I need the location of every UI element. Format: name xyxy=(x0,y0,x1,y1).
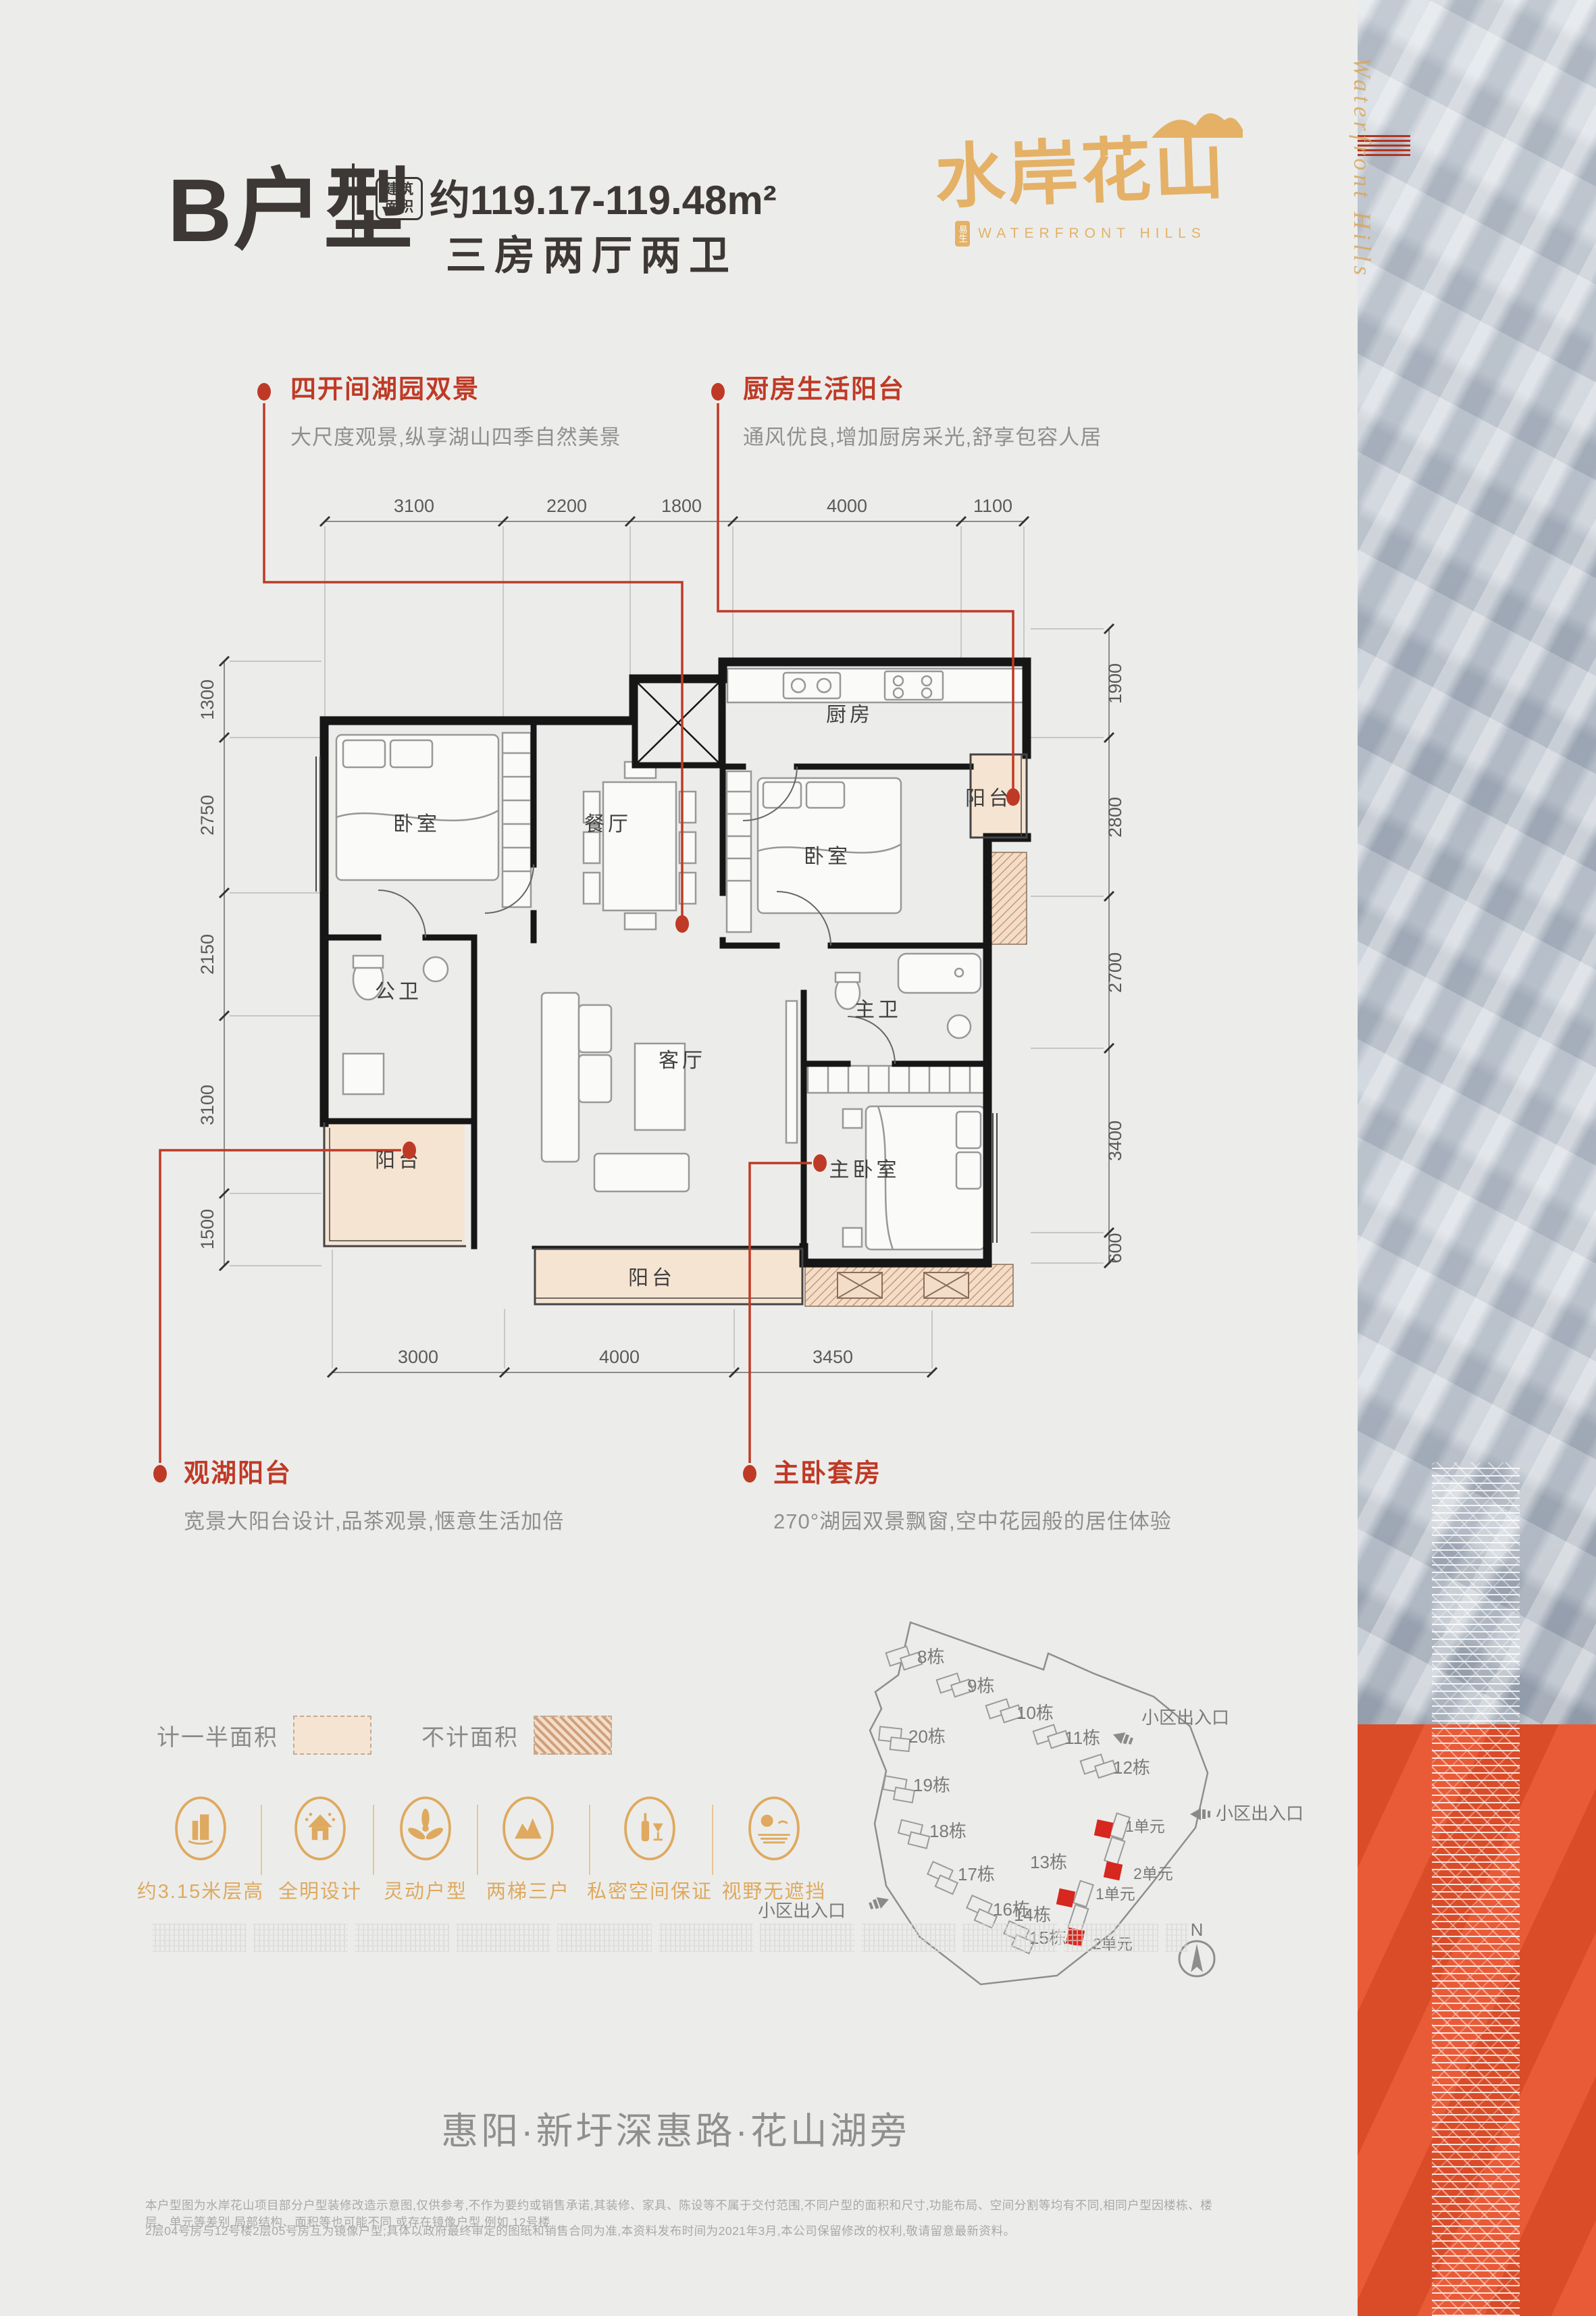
brand-logo: 水岸花山 易生 WATERFRONT HILLS xyxy=(922,115,1239,247)
mountain-icon xyxy=(1145,103,1246,143)
view-icon xyxy=(745,1795,803,1865)
dim-bottom-2: 4000 xyxy=(599,1347,640,1367)
dim-top-1: 3100 xyxy=(394,496,434,516)
callout-title: 主卧套房 xyxy=(773,1452,1172,1489)
entrance-label-top: 小区出入口 xyxy=(1141,1707,1229,1728)
room-bath-public: 公卫 xyxy=(375,981,422,1003)
wine-icon xyxy=(621,1795,679,1865)
feature-open-view: 视野无遮挡 xyxy=(706,1795,842,1904)
callout-title: 观湖阳台 xyxy=(184,1452,564,1489)
dim-right-1: 1900 xyxy=(1105,663,1125,704)
brand-seal: 易生 xyxy=(955,221,970,247)
dim-top-2: 2200 xyxy=(546,496,587,516)
fan-icon xyxy=(396,1795,455,1865)
callout-title: 厨房生活阳台 xyxy=(743,368,1102,405)
room-balcony-bottom: 阳台 xyxy=(628,1267,675,1289)
site-bld-14: 14栋 xyxy=(1014,1905,1051,1925)
project-address: 惠阳·新圩深惠路·花山湖旁 xyxy=(135,2101,1216,2155)
callout-desc: 通风优良,增加厨房采光,舒享包容人居 xyxy=(743,420,1102,451)
room-living: 客厅 xyxy=(659,1050,706,1072)
callout-dots xyxy=(153,383,1020,1483)
legend-none-label: 不计面积 xyxy=(421,1719,519,1752)
brand-logo-en: WATERFRONT HILLS xyxy=(978,226,1206,242)
unit-13-1: 1单元 xyxy=(1125,1818,1165,1835)
dim-top-4: 4000 xyxy=(827,496,867,516)
dim-right-4: 3400 xyxy=(1105,1121,1125,1161)
room-kitchen: 厨房 xyxy=(826,704,873,726)
room-bedroom-left: 卧室 xyxy=(393,813,440,835)
room-bedroom-right: 卧室 xyxy=(804,846,851,868)
legend-half-swatch xyxy=(293,1716,371,1755)
dim-right-2: 2800 xyxy=(1105,797,1125,838)
dim-left-3: 2150 xyxy=(197,934,217,975)
house-icon xyxy=(291,1795,349,1865)
site-bld-13: 13栋 xyxy=(1030,1852,1067,1872)
dim-right-3: 2700 xyxy=(1105,952,1125,993)
site-bld-10: 10栋 xyxy=(1016,1703,1054,1723)
site-bld-8: 8栋 xyxy=(917,1647,944,1667)
dim-right-5: 600 xyxy=(1105,1233,1125,1263)
disclaimer-line2: 2层04号房与12号楼2层05号房互为镜像户型;具体以政府最终审定的图纸和销售合… xyxy=(145,2222,1236,2239)
compass-n: N xyxy=(1191,1920,1204,1940)
callout-master-suite: 主卧套房 270°湖园双景飘窗,空中花园般的居住体验 xyxy=(773,1452,1172,1535)
strip-line-pattern xyxy=(1432,1462,1520,2316)
dim-top-5: 1100 xyxy=(973,496,1012,516)
mountain-icon xyxy=(499,1795,557,1865)
unit-13-2: 2单元 xyxy=(1133,1865,1173,1882)
title-divider xyxy=(352,163,355,243)
dim-bottom-1: 3000 xyxy=(398,1347,438,1367)
feature-elevators: 两梯三户 xyxy=(461,1795,596,1904)
feature-floor-height: 约3.15米层高 xyxy=(133,1795,268,1904)
area-badge-line2: 面积 xyxy=(385,199,413,216)
callout-desc: 宽景大阳台设计,品茶观景,惬意生活加倍 xyxy=(184,1504,564,1535)
feature-privacy: 私密空间保证 xyxy=(582,1795,717,1904)
poster-page: 3100 2200 1800 4000 1100 1300 2750 2150 … xyxy=(0,0,1596,2316)
area-legend: 计一半面积 不计面积 xyxy=(157,1716,612,1755)
callout-kitchen-balcony: 厨房生活阳台 通风优良,增加厨房采光,舒享包容人居 xyxy=(743,368,1102,451)
site-bld-19: 19栋 xyxy=(913,1775,950,1795)
building-icon xyxy=(172,1795,230,1865)
legend-none-swatch xyxy=(534,1716,612,1755)
layout-value: 三房两厅两卫 xyxy=(446,223,738,282)
site-bld-9: 9栋 xyxy=(967,1676,994,1696)
room-master-bedroom: 主卧室 xyxy=(829,1159,900,1181)
room-dining: 餐厅 xyxy=(584,813,632,835)
dim-top-3: 1800 xyxy=(661,496,702,516)
legend-half-label: 计一半面积 xyxy=(157,1719,278,1752)
unit-14-1: 1单元 xyxy=(1096,1885,1135,1903)
decorative-glyph-band xyxy=(145,1924,1189,1952)
dim-left-1: 1300 xyxy=(197,679,217,720)
gold-script-text: Waterfront Hills xyxy=(1348,57,1376,422)
callout-desc: 大尺度观景,纵享湖山四季自然美景 xyxy=(290,420,621,451)
callout-desc: 270°湖园双景飘窗,空中花园般的居住体验 xyxy=(773,1504,1172,1535)
site-bld-11: 11栋 xyxy=(1064,1728,1100,1748)
callout-title: 四开间湖园双景 xyxy=(290,368,621,405)
room-kitchen-balcony: 阳台 xyxy=(965,788,1012,810)
site-bld-18: 18栋 xyxy=(929,1821,967,1841)
entrance-label-right: 小区出入口 xyxy=(1216,1803,1304,1824)
site-bld-12: 12栋 xyxy=(1113,1757,1150,1778)
site-bld-20: 20栋 xyxy=(908,1726,946,1747)
area-badge-line1: 建筑 xyxy=(385,181,413,199)
room-bath-master: 主卫 xyxy=(854,999,902,1021)
dim-bottom-3: 3450 xyxy=(813,1347,853,1367)
area-value: 约119.17-119.48m² xyxy=(430,168,777,226)
callout-view-balcony: 观湖阳台 宽景大阳台设计,品茶观景,惬意生活加倍 xyxy=(184,1452,564,1535)
site-bld-17: 17栋 xyxy=(958,1864,995,1884)
dim-left-4: 3100 xyxy=(197,1085,217,1125)
area-badge: 建筑 面积 xyxy=(376,177,423,220)
dim-left-2: 2750 xyxy=(197,795,217,835)
callout-lake-view: 四开间湖园双景 大尺度观景,纵享湖山四季自然美景 xyxy=(290,368,621,451)
dim-left-5: 1500 xyxy=(197,1209,217,1250)
